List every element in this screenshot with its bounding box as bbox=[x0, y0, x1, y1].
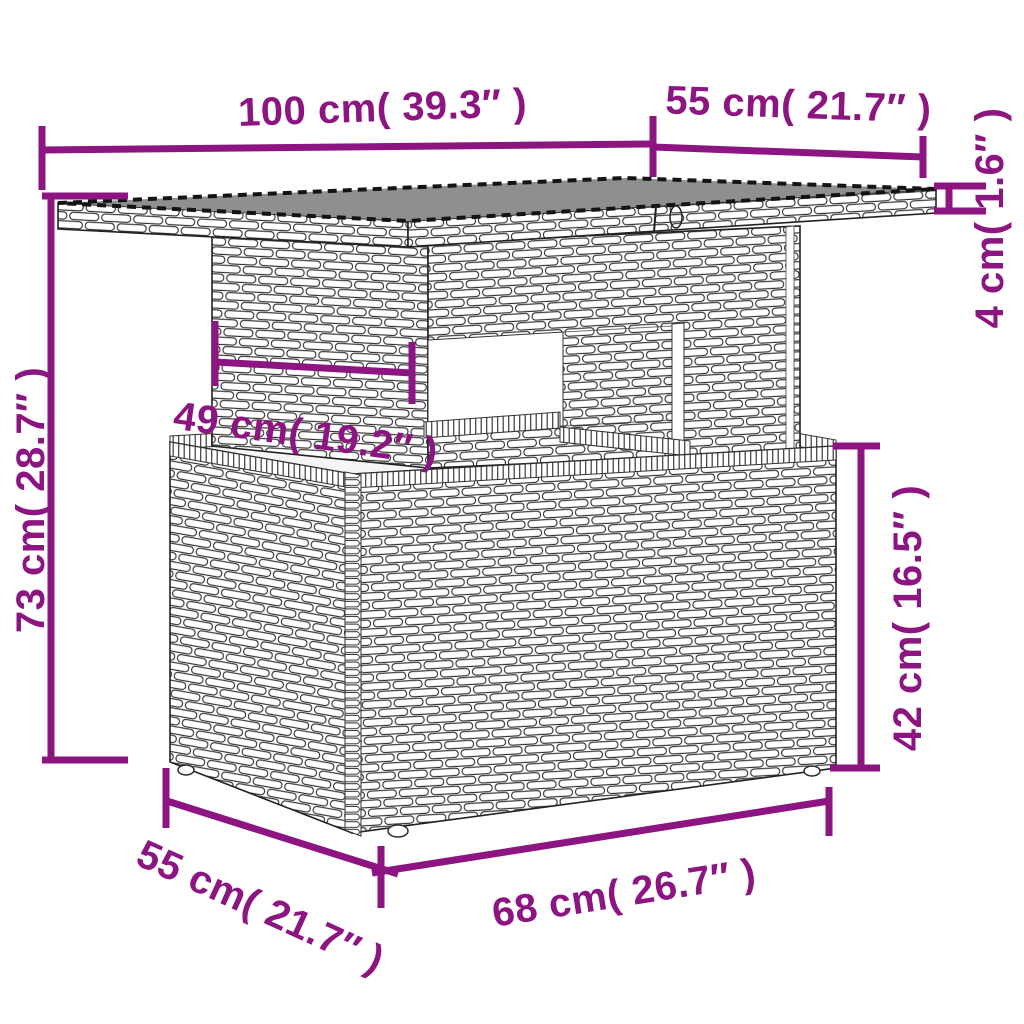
dimension-label-top-width: 100 cm( 39.3″ ) bbox=[237, 81, 527, 135]
dimension-line bbox=[42, 144, 653, 150]
pedestal-right-gap bbox=[786, 226, 794, 453]
dimension-label-overall-height: 73 cm( 28.7″ ) bbox=[9, 367, 53, 633]
tabletop bbox=[58, 178, 936, 247]
foot bbox=[178, 765, 194, 775]
base-box bbox=[170, 442, 836, 837]
table-illustration bbox=[58, 178, 936, 837]
pedestal-window-backwall bbox=[563, 326, 672, 426]
foot bbox=[804, 766, 820, 776]
dimension-label-top-thickness: 4 cm( 1.6″ ) bbox=[968, 108, 1012, 329]
dimension-label-base-depth: 55 cm( 21.7″ ) bbox=[130, 832, 391, 982]
dimension-line bbox=[653, 147, 923, 157]
product-dimension-diagram: 100 cm( 39.3″ ) 55 cm( 21.7″ ) 4 cm( 1.6… bbox=[0, 0, 1024, 1024]
diagram-canvas: 100 cm( 39.3″ ) 55 cm( 21.7″ ) 4 cm( 1.6… bbox=[0, 0, 1024, 1024]
pedestal-window-jamb bbox=[672, 323, 684, 449]
base-corner-band bbox=[345, 472, 361, 836]
dimension-top-thickness: 4 cm( 1.6″ ) bbox=[934, 108, 1012, 329]
dimension-label-base-width: 68 cm( 26.7″ ) bbox=[489, 851, 759, 936]
dimension-label-base-height: 42 cm( 16.5″ ) bbox=[886, 485, 930, 751]
base-left-face bbox=[170, 442, 352, 833]
foot bbox=[388, 825, 408, 837]
base-right-face bbox=[352, 446, 836, 833]
dimension-base-height: 42 cm( 16.5″ ) bbox=[830, 446, 930, 768]
dimension-top-depth: 55 cm( 21.7″ ) bbox=[653, 78, 932, 178]
dimension-label-top-depth: 55 cm( 21.7″ ) bbox=[665, 78, 933, 131]
dimension-overall-height: 73 cm( 28.7″ ) bbox=[9, 196, 128, 760]
dimension-top-width: 100 cm( 39.3″ ) bbox=[42, 81, 653, 190]
